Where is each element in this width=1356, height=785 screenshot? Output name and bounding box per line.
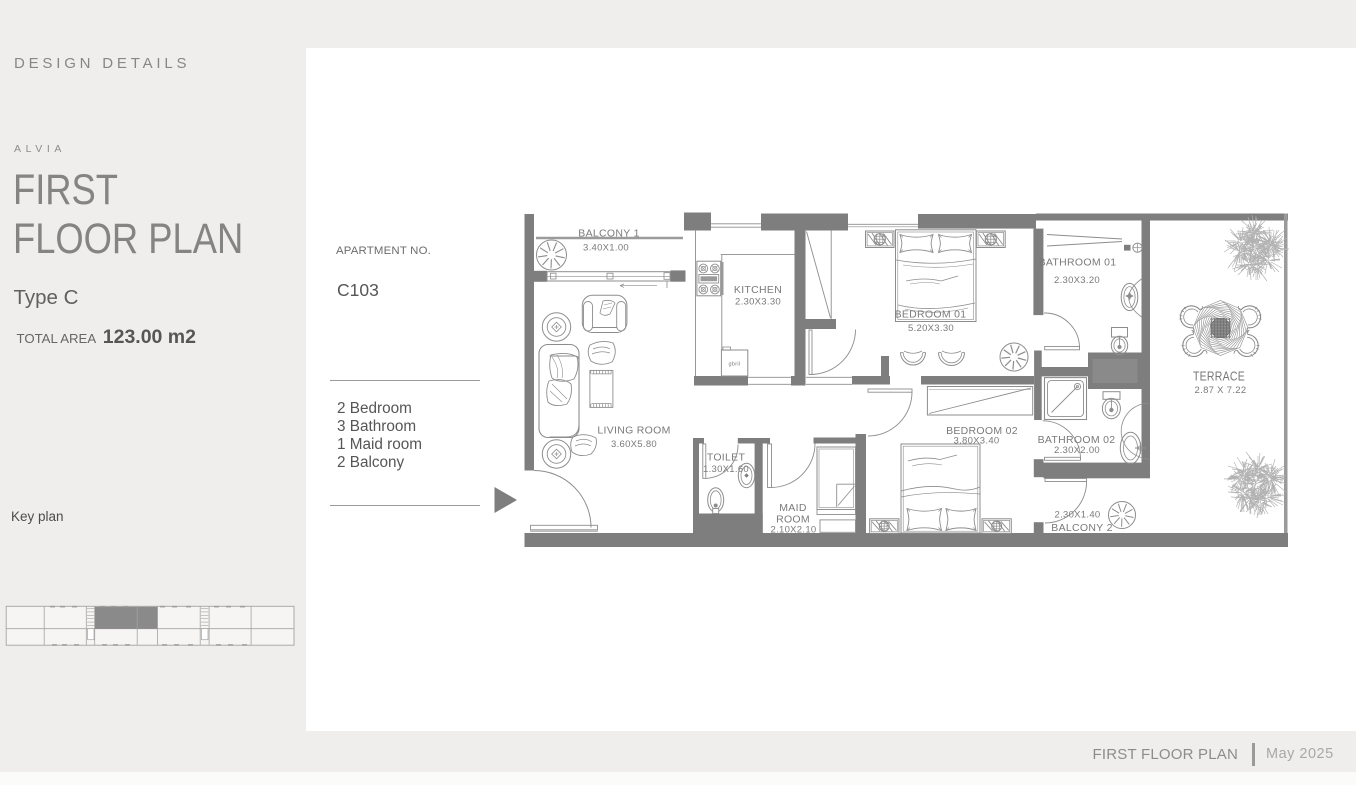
svg-text:5.20X3.30: 5.20X3.30 bbox=[908, 323, 954, 334]
svg-text:2.10X2.10: 2.10X2.10 bbox=[770, 525, 816, 536]
svg-text:2.87 X 7.22: 2.87 X 7.22 bbox=[1195, 385, 1247, 396]
svg-text:BATHROOM 01: BATHROOM 01 bbox=[1039, 257, 1117, 269]
svg-text:2.30X1.40: 2.30X1.40 bbox=[1054, 510, 1100, 521]
svg-text:TERRACE: TERRACE bbox=[1193, 370, 1245, 384]
svg-text:3.60X5.80: 3.60X5.80 bbox=[611, 439, 657, 450]
svg-text:2.30X2.00: 2.30X2.00 bbox=[1054, 445, 1100, 456]
svg-text:BALCONY 1: BALCONY 1 bbox=[578, 228, 639, 240]
svg-text:1.30X1.60: 1.30X1.60 bbox=[703, 464, 749, 475]
svg-text:2.30X3.20: 2.30X3.20 bbox=[1054, 275, 1100, 286]
svg-text:KITCHEN: KITCHEN bbox=[734, 284, 782, 296]
svg-text:BATHROOM 02: BATHROOM 02 bbox=[1038, 434, 1116, 446]
svg-text:MAID: MAID bbox=[779, 502, 807, 514]
svg-text:BALCONY 2: BALCONY 2 bbox=[1051, 522, 1112, 534]
svg-text:BEDROOM 01: BEDROOM 01 bbox=[895, 309, 967, 321]
svg-text:3.40X1.00: 3.40X1.00 bbox=[583, 242, 629, 253]
svg-text:2.30X3.30: 2.30X3.30 bbox=[735, 297, 781, 308]
svg-text:gbril: gbril bbox=[729, 362, 741, 368]
svg-text:LIVING ROOM: LIVING ROOM bbox=[597, 425, 670, 437]
svg-text:TOILET: TOILET bbox=[707, 452, 746, 464]
svg-text:3.80X3.40: 3.80X3.40 bbox=[953, 435, 999, 446]
